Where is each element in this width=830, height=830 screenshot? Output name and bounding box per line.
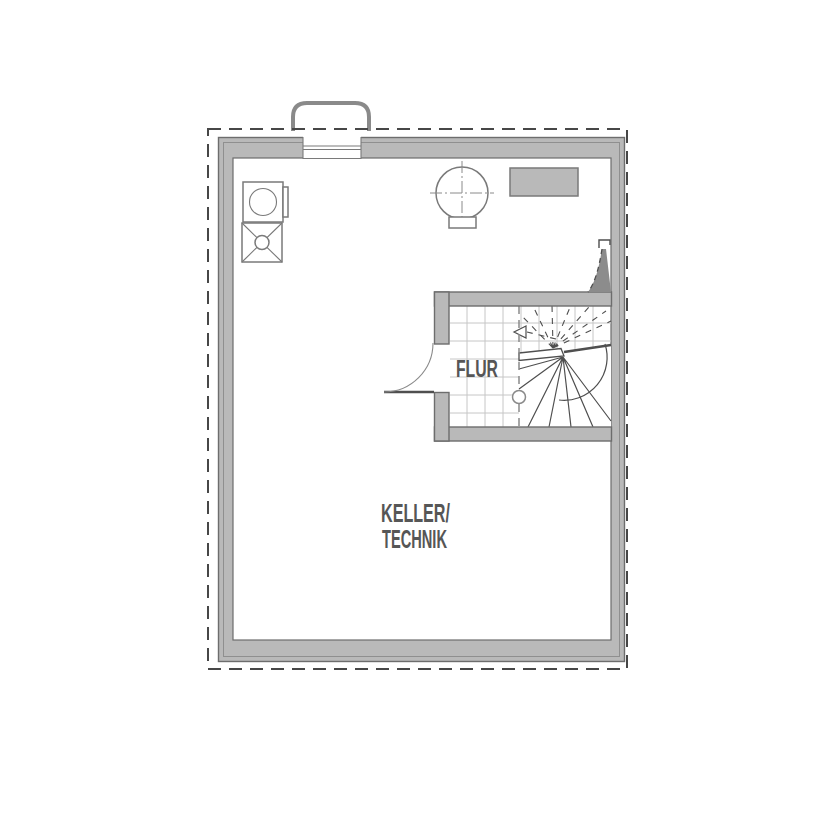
floor-plan-canvas: FLUR KELLER/ TECHNIK	[0, 0, 830, 830]
chimney-flue	[293, 103, 369, 160]
walkline-start-circle	[513, 391, 526, 404]
floor-plan: FLUR KELLER/ TECHNIK	[0, 0, 830, 830]
washing-machine	[243, 182, 288, 222]
room-label-keller-line2: TECHNIK	[382, 524, 447, 554]
room-label-flur: FLUR	[456, 356, 498, 382]
equipment-block	[510, 168, 578, 196]
floor-drain	[242, 223, 282, 262]
staircase-lower-flight	[519, 344, 611, 427]
